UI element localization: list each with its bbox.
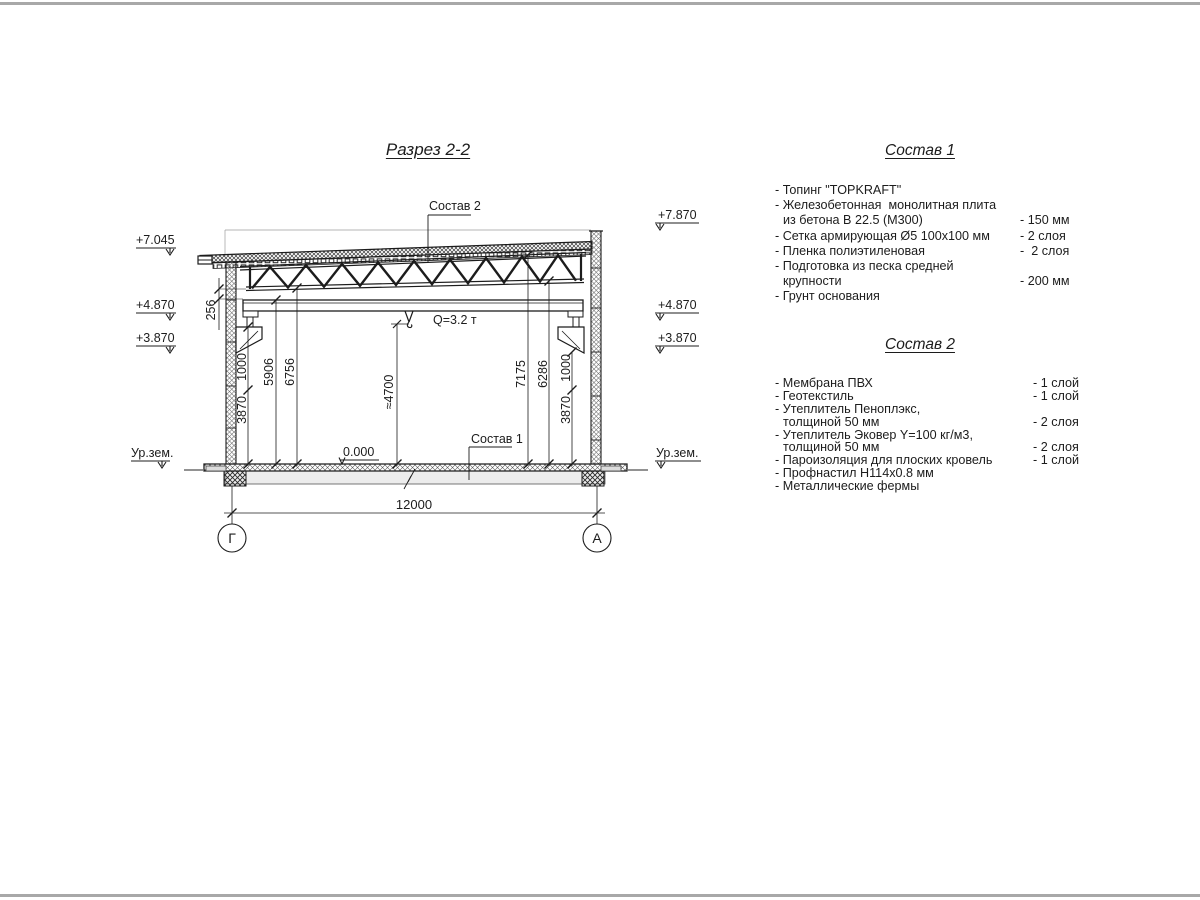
crane-capacity-label: Q=3.2 т [433, 314, 477, 327]
spec-item-text: - Утеплитель Пеноплэкс, [775, 402, 920, 416]
spec-item-text: толщиной 50 мм [783, 440, 879, 454]
spec-row: из бетона В 22.5 (М300)- 150 мм [775, 213, 1097, 228]
dim-label-left-3870: 3870 [236, 396, 249, 424]
floor-slab [204, 464, 627, 489]
spec-item-text: - Мембрана ПВХ [775, 376, 873, 390]
spec-item-text: - Топинг "TOPKRAFT" [775, 183, 901, 197]
dim-label-left-1000: 1000 [236, 353, 249, 381]
spec-item-value: - 150 мм [1020, 213, 1070, 228]
spec-row: - Подготовка из песка средней [775, 259, 1097, 274]
drawing-sheet: Разрез 2-2 Состав 2 Состав 1 0.000 Q=3.2… [0, 0, 1200, 900]
spec-row: крупности- 200 мм [775, 274, 1097, 289]
dim-label-6286: 6286 [537, 360, 550, 388]
spec-item-value: - 2 слоя [1020, 229, 1066, 244]
spec-item-value: - 2 слоя [1033, 416, 1079, 429]
spec-item-text: толщиной 50 мм [783, 415, 879, 429]
ground-level-label-left: Ур.зем. [131, 447, 173, 460]
axis-grid [218, 486, 611, 552]
spec-panel-sostav1: Состав 1 - Топинг "TOPKRAFT" - Железобет… [775, 142, 1097, 305]
span-dim-label: 12000 [396, 498, 432, 511]
spec-item-text: из бетона В 22.5 (М300) [783, 213, 923, 227]
drawing-title: Разрез 2-2 [386, 141, 470, 158]
zero-level-label: 0.000 [343, 446, 374, 459]
spec-row: - Утеплитель Пеноплэкс, [775, 403, 1097, 416]
elevation-label-right-top: +7.870 [658, 209, 697, 222]
spec-item-value: - 1 слой [1033, 377, 1079, 390]
spec-item-value: - 1 слой [1033, 390, 1079, 403]
spec-row: - Железобетонная монолитная плита [775, 198, 1097, 213]
spec-item-value: - 200 мм [1020, 274, 1070, 289]
spec-row: - Топинг "TOPKRAFT" [775, 183, 1097, 198]
dim-label-right-1000: 1000 [560, 354, 573, 382]
spec-title: Состав 1 [775, 142, 1065, 160]
spec-item-text: - Пароизоляция для плоских кровель [775, 453, 992, 467]
spec-item-text: - Геотекстиль [775, 389, 854, 403]
footing-right [582, 471, 604, 486]
ground-level-label-right: Ур.зем. [656, 447, 698, 460]
crane-beam [243, 300, 583, 327]
right-parapet-wall [589, 231, 603, 464]
spec-item-text: - Пленка полиэтиленовая [775, 244, 925, 258]
axis-letter-right: А [592, 531, 601, 545]
elevation-label-right-mid: +4.870 [658, 299, 697, 312]
elevation-label-left-low: +3.870 [136, 332, 175, 345]
spec-item-text: - Профнастил Н114х0.8 мм [775, 466, 934, 480]
spec-row: - Металлические фермы [775, 480, 1097, 493]
spec-item-text: - Подготовка из песка средней [775, 259, 954, 273]
dim-label-6756: 6756 [284, 358, 297, 386]
corbel-left [236, 327, 262, 353]
dim-label-5906: 5906 [263, 358, 276, 386]
corbel-right [558, 327, 584, 353]
callout-sostav2: Состав 2 [429, 200, 481, 213]
spec-item-text: - Железобетонная монолитная плита [775, 198, 996, 212]
crane-hook-icon [391, 311, 413, 328]
spec-row: - Пленка полиэтиленовая- 2 слоя [775, 244, 1097, 259]
spec-row: - Грунт основания [775, 289, 1097, 304]
spec-item-text: - Утеплитель Эковер Y=100 кг/м3, [775, 428, 973, 442]
spec-item-text: крупности [783, 274, 842, 288]
axis-letter-left: Г [228, 531, 236, 545]
elevation-label-left-mid: +4.870 [136, 299, 175, 312]
dim-label-7175: 7175 [515, 360, 528, 388]
spec-title: Состав 2 [775, 336, 1065, 354]
callout-sostav1: Состав 1 [471, 433, 523, 446]
footing-left [224, 471, 246, 486]
elevation-label-right-low: +3.870 [658, 332, 697, 345]
dim-label-right-3870: 3870 [560, 396, 573, 424]
dim-label-4700: ≈4700 [383, 375, 396, 410]
spec-item-text: - Грунт основания [775, 289, 880, 303]
spec-item-text: - Металлические фермы [775, 479, 919, 493]
spec-item-text: - Сетка армирующая Ø5 100х100 мм [775, 229, 990, 243]
dim-label-256: 256 [205, 300, 218, 321]
spec-item-value: - 1 слой [1033, 454, 1079, 467]
spec-row: - Сетка армирующая Ø5 100х100 мм- 2 слоя [775, 229, 1097, 244]
spec-panel-sostav2: Состав 2 - Мембрана ПВХ- 1 слой - Геотек… [775, 336, 1097, 493]
elevation-label-left-top: +7.045 [136, 234, 175, 247]
spec-item-value: - 2 слоя [1020, 244, 1069, 259]
